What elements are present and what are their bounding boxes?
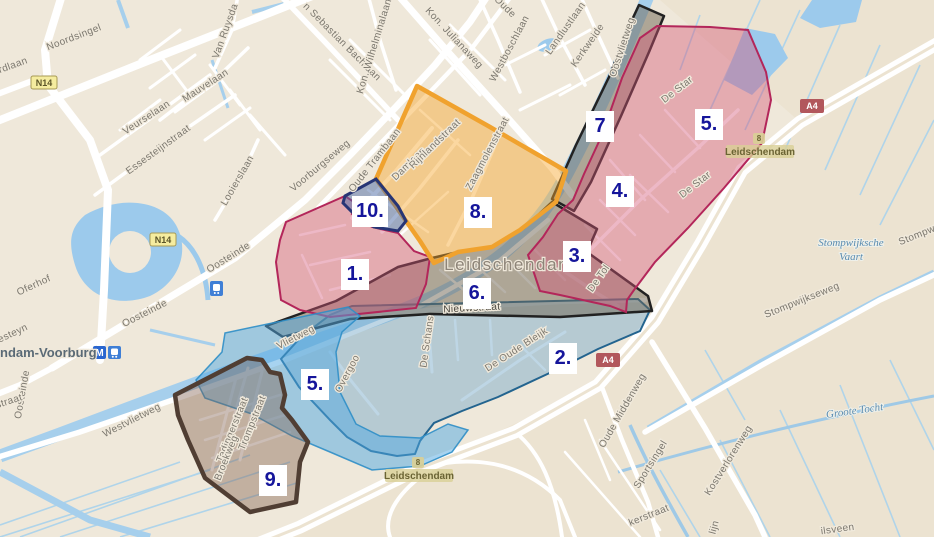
exit-8-south-number: 8: [416, 458, 421, 467]
map-canvas[interactable]: N14 N14 A4 A4 8 Leidschendam 8 Leidschen…: [0, 0, 934, 537]
water-label-stompwijksche: Stompwijksche: [818, 237, 883, 249]
zone-label-2[interactable]: 2.: [549, 343, 577, 374]
zone-label-9[interactable]: 9.: [259, 465, 287, 496]
n14-shield-east-text: N14: [155, 235, 172, 245]
zone-label-6[interactable]: 6.: [463, 278, 491, 309]
a4-shield-north: A4: [800, 99, 824, 113]
zone-label-8[interactable]: 8.: [464, 197, 492, 228]
zone-label-10[interactable]: 10.: [352, 196, 388, 227]
exit-8-north-name: Leidschendam: [725, 147, 795, 158]
zone-label-5-north[interactable]: 5.: [695, 109, 723, 140]
exit-8-south-name: Leidschendam: [384, 471, 454, 482]
tram-stop-icon[interactable]: [210, 281, 223, 296]
n14-shield-west: N14: [31, 76, 57, 89]
zone-label-5-south[interactable]: 5.: [301, 369, 329, 400]
exit-8-north-number: 8: [757, 134, 762, 143]
zone-label-1[interactable]: 1.: [341, 259, 369, 290]
a4-shield-south-text: A4: [602, 355, 614, 365]
metro-icon-letter: M: [95, 348, 103, 359]
zone-label-7[interactable]: 7: [586, 111, 614, 142]
n14-shield-west-text: N14: [36, 78, 53, 88]
city-label-leidschendam: Leidschendam: [444, 255, 574, 274]
a4-shield-north-text: A4: [806, 101, 818, 111]
a4-shield-south: A4: [596, 353, 620, 367]
train-icon[interactable]: [108, 346, 121, 359]
water-label-vaart: Vaart: [839, 251, 864, 263]
n14-shield-east: N14: [150, 233, 176, 246]
zone-label-4[interactable]: 4.: [606, 176, 634, 207]
zone-label-3[interactable]: 3.: [563, 241, 591, 272]
station-label-voorburg: ndam-Voorburg: [0, 345, 97, 360]
